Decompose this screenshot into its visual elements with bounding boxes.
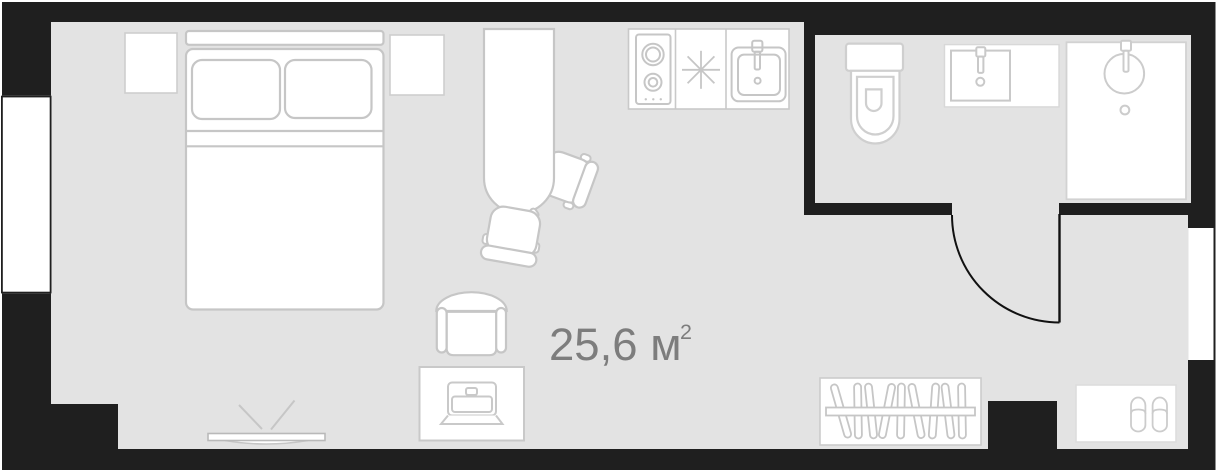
svg-text:2: 2 bbox=[680, 320, 692, 344]
svg-text:25,6 м: 25,6 м bbox=[549, 319, 681, 370]
